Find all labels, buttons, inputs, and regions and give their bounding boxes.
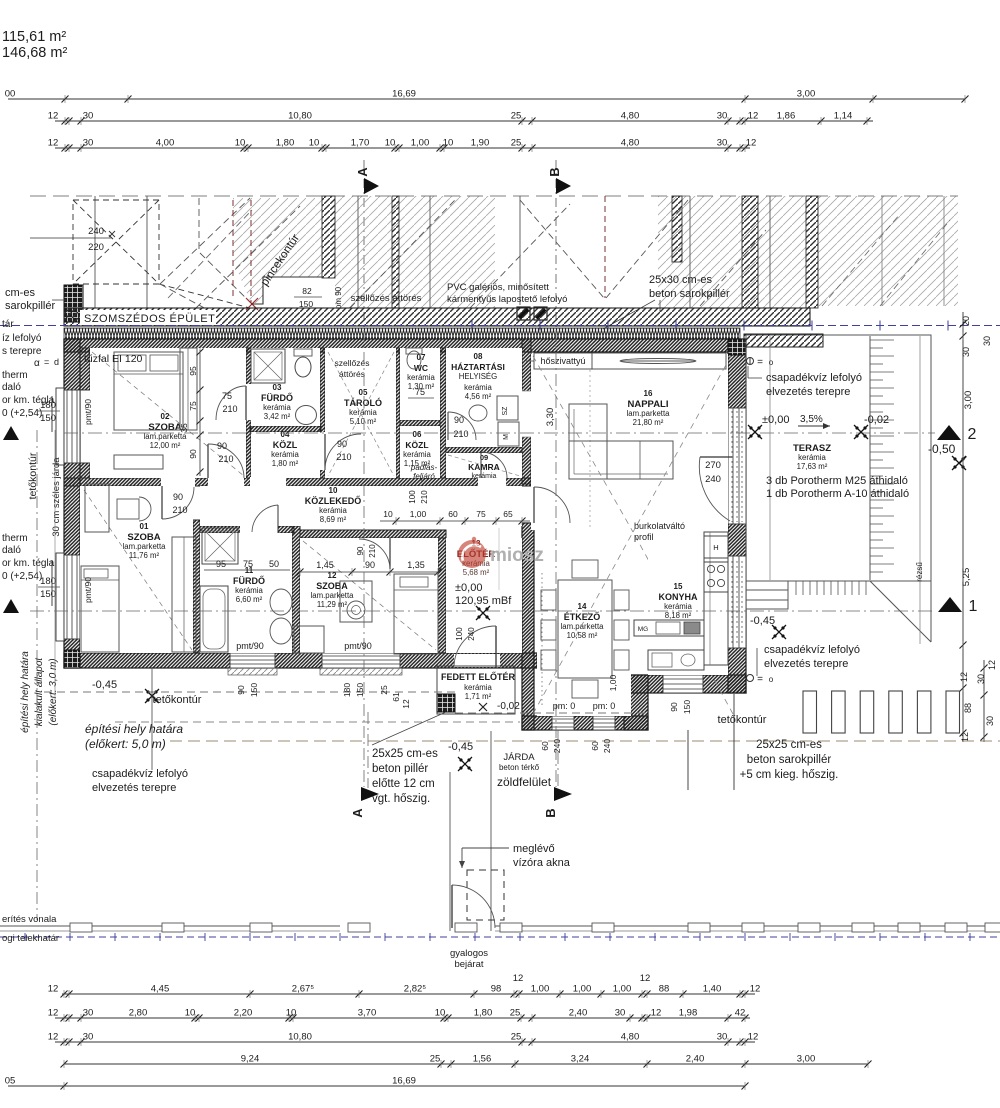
svg-text:30: 30 (615, 1008, 626, 1019)
svg-text:210: 210 (218, 454, 233, 464)
svg-text:KÖZL: KÖZL (405, 440, 428, 450)
svg-text:kerámia: kerámia (319, 506, 347, 515)
svg-text:11,76 m²: 11,76 m² (129, 551, 160, 560)
svg-text:150: 150 (355, 683, 365, 697)
svg-text:5,25: 5,25 (961, 568, 972, 587)
svg-text:pm: 0: pm: 0 (553, 701, 576, 711)
svg-text:12: 12 (959, 672, 969, 682)
svg-text:1,90: 1,90 (471, 138, 490, 149)
svg-text:08: 08 (474, 352, 483, 361)
svg-text:90: 90 (188, 449, 198, 459)
svg-text:=: = (757, 357, 763, 368)
svg-text:75: 75 (188, 401, 198, 411)
svg-text:42: 42 (735, 1008, 746, 1019)
svg-text:(előkert: 3,0 m): (előkert: 3,0 m) (48, 658, 59, 725)
svg-text:25: 25 (511, 1032, 522, 1043)
svg-text:240: 240 (88, 226, 104, 237)
svg-text:4,80: 4,80 (621, 138, 640, 149)
svg-text:ogi telekhatár: ogi telekhatár (2, 933, 59, 944)
svg-text:100: 100 (455, 627, 464, 641)
svg-text:íz lefolyó: íz lefolyó (2, 333, 42, 344)
svg-text:előtte 12 cm: előtte 12 cm (372, 778, 435, 790)
svg-text:0 (+2,54): 0 (+2,54) (2, 571, 42, 582)
svg-text:16,69: 16,69 (392, 1076, 416, 1087)
svg-text:12: 12 (401, 699, 411, 709)
svg-text:210: 210 (336, 452, 351, 462)
svg-text:1,14: 1,14 (834, 111, 853, 122)
svg-text:SZ: SZ (502, 406, 509, 416)
svg-text:=: = (757, 674, 763, 685)
svg-text:KÖZL: KÖZL (273, 440, 298, 450)
svg-text:PVC galériós, minősített: PVC galériós, minősített (447, 282, 549, 293)
svg-text:hőszivattyú: hőszivattyú (540, 356, 585, 366)
svg-text:kerámia: kerámia (464, 683, 492, 692)
svg-text:30 cm széles járda: 30 cm széles járda (51, 457, 62, 537)
svg-text:pmt/90: pmt/90 (344, 641, 372, 651)
svg-text:270: 270 (705, 460, 721, 471)
svg-text:35: 35 (179, 423, 189, 433)
svg-text:30: 30 (961, 347, 971, 357)
svg-text:-0,45: -0,45 (448, 741, 473, 753)
svg-text:2: 2 (968, 426, 977, 443)
svg-text:220: 220 (88, 242, 104, 253)
svg-text:05: 05 (359, 388, 368, 397)
svg-text:25x25 cm-es: 25x25 cm-es (756, 739, 822, 751)
svg-text:9,24: 9,24 (241, 1054, 260, 1065)
svg-text:150: 150 (40, 413, 56, 424)
svg-text:pmt/90: pmt/90 (236, 641, 264, 651)
svg-text:50: 50 (269, 559, 279, 569)
svg-text:60: 60 (590, 741, 600, 751)
svg-text:98: 98 (491, 984, 502, 995)
svg-text:30: 30 (717, 111, 728, 122)
svg-text:90: 90 (365, 560, 375, 570)
svg-text:daló: daló (2, 382, 21, 393)
svg-text:gyalogos: gyalogos (450, 948, 488, 959)
svg-text:30: 30 (83, 138, 94, 149)
svg-text:s terepre: s terepre (2, 346, 42, 357)
svg-text:90: 90 (669, 702, 679, 712)
svg-text:±0,00: ±0,00 (762, 414, 789, 426)
svg-text:sarokpillér: sarokpillér (5, 300, 55, 312)
svg-text:-0,45: -0,45 (750, 615, 775, 627)
svg-text:1,56: 1,56 (473, 1054, 492, 1065)
svg-text:kerámia: kerámia (403, 450, 431, 459)
svg-text:1,00: 1,00 (531, 984, 550, 995)
svg-text:MG: MG (638, 626, 648, 633)
svg-text:1,71 m²: 1,71 m² (465, 692, 492, 701)
svg-text:α: α (34, 358, 40, 369)
svg-text:beton térkő: beton térkő (499, 763, 540, 772)
svg-text:150: 150 (40, 589, 56, 600)
svg-text:o: o (769, 675, 774, 684)
svg-text:HÁZTARTÁSI: HÁZTARTÁSI (451, 362, 505, 372)
svg-text:12: 12 (748, 111, 759, 122)
svg-text:therm: therm (2, 533, 28, 544)
svg-text:kialakult állapot: kialakult állapot (34, 657, 45, 727)
svg-text:61: 61 (391, 692, 401, 702)
svg-text:3,30: 3,30 (545, 408, 556, 427)
svg-text:05: 05 (5, 1076, 16, 1087)
svg-text:cm-es: cm-es (5, 287, 35, 299)
svg-text:-0,45: -0,45 (92, 679, 117, 691)
svg-text:pm: 0: pm: 0 (593, 701, 616, 711)
svg-text:90: 90 (173, 492, 183, 502)
svg-text:180: 180 (342, 683, 352, 697)
svg-text:8,69 m²: 8,69 m² (320, 515, 347, 524)
svg-text:vgt. hőszig.: vgt. hőszig. (372, 793, 430, 805)
svg-text:10: 10 (309, 138, 320, 149)
svg-text:90: 90 (236, 685, 246, 695)
svg-text:JÁRDA: JÁRDA (503, 752, 535, 763)
svg-text:2,82⁵: 2,82⁵ (404, 984, 426, 995)
svg-text:10: 10 (435, 1008, 446, 1019)
svg-text:06: 06 (413, 430, 422, 439)
svg-text:95: 95 (188, 366, 198, 376)
svg-text:17,63 m²: 17,63 m² (797, 462, 828, 471)
svg-text:áttörés: áttörés (339, 369, 365, 379)
svg-text:TÁROLÓ: TÁROLÓ (344, 397, 382, 408)
svg-text:kerámia: kerámia (271, 450, 299, 459)
svg-text:20: 20 (961, 316, 971, 326)
svg-text:miosz: miosz (490, 545, 544, 566)
svg-text:-0,50: -0,50 (928, 442, 956, 456)
svg-text:75: 75 (415, 387, 425, 397)
svg-text:elvezetés terepre: elvezetés terepre (766, 386, 850, 398)
svg-text:90: 90 (454, 415, 464, 425)
svg-text:30: 30 (717, 138, 728, 149)
svg-text:lam.parketta: lam.parketta (123, 542, 167, 551)
svg-text:1,00: 1,00 (411, 138, 430, 149)
svg-text:1,86: 1,86 (777, 111, 796, 122)
svg-text:4,56 m²: 4,56 m² (465, 392, 492, 401)
svg-text:B: B (547, 167, 562, 176)
svg-text:profil: profil (634, 532, 654, 542)
svg-text:30: 30 (976, 674, 986, 684)
svg-text:építési hely határa: építési hely határa (85, 722, 183, 736)
svg-text:B: B (543, 808, 558, 817)
svg-text:WC: WC (414, 363, 428, 373)
svg-text:KÖZLEKEDŐ: KÖZLEKEDŐ (305, 495, 362, 506)
svg-text:kerámia: kerámia (235, 586, 263, 595)
svg-text:03: 03 (273, 383, 282, 392)
svg-text:240: 240 (552, 739, 562, 753)
svg-text:+5 cm kieg. hőszig.: +5 cm kieg. hőszig. (740, 769, 839, 781)
svg-text:2,40: 2,40 (569, 1008, 588, 1019)
svg-text:25: 25 (511, 111, 522, 122)
svg-text:FÜRDŐ: FÜRDŐ (261, 392, 293, 403)
svg-text:SZOMSZÉDOS ÉPÜLET: SZOMSZÉDOS ÉPÜLET (84, 312, 215, 325)
svg-text:10: 10 (443, 138, 454, 149)
svg-text:4,00: 4,00 (156, 138, 175, 149)
svg-text:3,5%: 3,5% (800, 414, 823, 425)
svg-text:12: 12 (513, 973, 524, 984)
svg-text:vízóra akna: vízóra akna (513, 857, 571, 869)
svg-text:erítés vonala: erítés vonala (2, 914, 57, 925)
svg-text:1,45: 1,45 (316, 560, 334, 570)
svg-text:210: 210 (172, 505, 187, 515)
svg-text:1,00: 1,00 (608, 674, 618, 691)
svg-text:1,98: 1,98 (679, 1008, 698, 1019)
svg-text:10: 10 (383, 509, 393, 519)
svg-text:01: 01 (140, 522, 149, 531)
svg-text:HELYISÉG: HELYISÉG (459, 372, 497, 381)
svg-text:12: 12 (746, 138, 757, 149)
svg-text:építési hely határa: építési hely határa (20, 651, 31, 733)
svg-text:10,80: 10,80 (288, 1032, 312, 1043)
svg-text:1,40: 1,40 (703, 984, 722, 995)
svg-text:02: 02 (161, 412, 170, 421)
svg-text:30: 30 (83, 111, 94, 122)
svg-text:75: 75 (222, 391, 232, 401)
svg-text:kerámia: kerámia (407, 373, 435, 382)
svg-text:25x25 cm-es: 25x25 cm-es (372, 748, 438, 760)
svg-text:10: 10 (286, 1008, 297, 1019)
svg-text:kerámia: kerámia (798, 453, 826, 462)
svg-text:3 db Porotherm M25 áthidaló: 3 db Porotherm M25 áthidaló (766, 475, 908, 487)
svg-text:11,29 m²: 11,29 m² (317, 600, 348, 609)
svg-text:75: 75 (243, 559, 253, 569)
svg-text:kerámia: kerámia (664, 602, 692, 611)
svg-text:3,24: 3,24 (571, 1054, 590, 1065)
svg-text:30: 30 (982, 336, 992, 346)
svg-text:12: 12 (987, 660, 997, 670)
svg-text:3,42 m²: 3,42 m² (264, 412, 291, 421)
svg-text:12: 12 (48, 138, 59, 149)
svg-text:12: 12 (48, 111, 59, 122)
svg-text:210: 210 (453, 429, 468, 439)
svg-text:30: 30 (985, 716, 995, 726)
svg-text:padlás-: padlás- (410, 463, 438, 472)
svg-text:10: 10 (185, 1008, 196, 1019)
svg-text:beton pillér: beton pillér (372, 763, 428, 775)
svg-text:04: 04 (281, 430, 290, 439)
svg-text:feljáró: feljáró (413, 472, 435, 481)
svg-text:or km. tégla: or km. tégla (2, 558, 55, 569)
svg-text:beton sarokpillér: beton sarokpillér (747, 754, 832, 766)
svg-text:-0,02: -0,02 (497, 701, 520, 712)
svg-text:tár: tár (2, 319, 14, 330)
svg-text:KONYHA: KONYHA (658, 592, 698, 602)
svg-text:M: M (503, 434, 510, 440)
svg-text:15: 15 (674, 582, 683, 591)
svg-text:szellőzés áttörés: szellőzés áttörés (351, 293, 422, 304)
svg-text:21,80 m²: 21,80 m² (633, 418, 664, 427)
svg-text:65: 65 (503, 509, 513, 519)
svg-text:12: 12 (640, 973, 651, 984)
svg-text:pm 90: pm 90 (334, 286, 343, 309)
svg-text:00: 00 (5, 89, 16, 100)
svg-text:90: 90 (337, 439, 347, 449)
svg-text:210: 210 (420, 490, 429, 504)
svg-text:12,00 m²: 12,00 m² (150, 441, 181, 450)
svg-text:180: 180 (40, 400, 56, 411)
svg-text:75: 75 (476, 509, 486, 519)
svg-text:kerámia: kerámia (263, 403, 291, 412)
svg-text:210: 210 (368, 544, 377, 558)
svg-text:SZOBA: SZOBA (316, 581, 348, 591)
svg-text:=: = (44, 357, 49, 367)
svg-text:1,80: 1,80 (276, 138, 295, 149)
svg-text:30: 30 (83, 1008, 94, 1019)
svg-text:2,67⁵: 2,67⁵ (292, 984, 314, 995)
svg-text:daló: daló (2, 545, 21, 556)
svg-text:1,00: 1,00 (613, 984, 632, 995)
svg-text:1,80 m²: 1,80 m² (272, 459, 299, 468)
svg-text:10: 10 (235, 138, 246, 149)
svg-text:d: d (54, 357, 59, 367)
svg-text:tetőkontúr: tetőkontúr (153, 694, 202, 706)
svg-text:H: H (713, 543, 718, 552)
svg-text:30: 30 (83, 1032, 94, 1043)
svg-text:lam.parketta: lam.parketta (311, 591, 355, 600)
svg-text:5,68 m²: 5,68 m² (463, 568, 490, 577)
svg-text:rézsű: rézsű (915, 562, 924, 582)
svg-text:10: 10 (385, 138, 396, 149)
svg-text:1 db Porotherm A-10 áthidaló: 1 db Porotherm A-10 áthidaló (766, 488, 909, 500)
svg-text:10: 10 (329, 486, 338, 495)
svg-text:bejárat: bejárat (454, 959, 483, 970)
svg-text:kerámia: kerámia (472, 473, 497, 480)
svg-text:146,68 m²: 146,68 m² (2, 45, 67, 61)
svg-text:A: A (355, 167, 370, 177)
svg-text:12: 12 (48, 984, 59, 995)
svg-text:meglévő: meglévő (513, 843, 555, 855)
svg-text:95: 95 (216, 559, 226, 569)
svg-text:burkolatváltó: burkolatváltó (634, 521, 685, 531)
svg-text:12: 12 (748, 1032, 759, 1043)
svg-text:3,00: 3,00 (797, 89, 816, 100)
svg-text:1,35: 1,35 (407, 560, 425, 570)
svg-text:60: 60 (540, 741, 550, 751)
svg-text:4,80: 4,80 (621, 1032, 640, 1043)
svg-text:5,10 m²: 5,10 m² (350, 417, 377, 426)
svg-text:tűzfal EI 120: tűzfal EI 120 (84, 353, 143, 365)
svg-text:1,00: 1,00 (410, 509, 427, 519)
svg-text:12: 12 (651, 1008, 662, 1019)
svg-text:210: 210 (222, 404, 237, 414)
svg-text:88: 88 (963, 703, 973, 713)
svg-text:240: 240 (602, 739, 612, 753)
svg-text:60: 60 (448, 509, 458, 519)
svg-text:0 (+2,54): 0 (+2,54) (2, 408, 42, 419)
svg-text:240: 240 (705, 474, 721, 485)
svg-text:2,20: 2,20 (234, 1008, 253, 1019)
svg-text:ÉTKEZŐ: ÉTKEZŐ (564, 611, 601, 622)
svg-text:FÜRDŐ: FÜRDŐ (233, 575, 265, 586)
svg-text:30: 30 (717, 1032, 728, 1043)
svg-text:(előkert: 5,0 m): (előkert: 5,0 m) (85, 737, 166, 751)
svg-text:90: 90 (217, 441, 227, 451)
svg-text:180: 180 (40, 576, 56, 587)
svg-text:2,80: 2,80 (129, 1008, 148, 1019)
svg-text:beton sarokpillér: beton sarokpillér (649, 288, 730, 300)
svg-text:1,80: 1,80 (474, 1008, 493, 1019)
svg-text:1,70: 1,70 (351, 138, 370, 149)
svg-text:16: 16 (644, 389, 653, 398)
svg-text:25: 25 (430, 1054, 441, 1065)
svg-text:82: 82 (302, 286, 312, 296)
svg-text:14: 14 (578, 602, 587, 611)
svg-text:240: 240 (467, 627, 476, 641)
svg-text:4,80: 4,80 (621, 111, 640, 122)
svg-text:150: 150 (682, 700, 692, 714)
svg-text:12: 12 (48, 1008, 59, 1019)
svg-text:FEDETT ELŐTÉR: FEDETT ELŐTÉR (441, 671, 516, 682)
svg-text:-0,02: -0,02 (864, 414, 889, 426)
svg-text:KAMRA: KAMRA (468, 462, 500, 472)
svg-text:8,18 m²: 8,18 m² (665, 611, 692, 620)
svg-text:16,69: 16,69 (392, 89, 416, 100)
svg-text:lam.parketta: lam.parketta (561, 622, 605, 631)
svg-text:therm: therm (2, 370, 28, 381)
svg-text:100: 100 (408, 490, 417, 504)
svg-text:150: 150 (249, 683, 259, 697)
svg-text:12: 12 (750, 984, 761, 995)
svg-text:1: 1 (969, 598, 978, 615)
svg-text:csapadékvíz lefolyó: csapadékvíz lefolyó (764, 644, 860, 656)
svg-text:25: 25 (379, 685, 389, 695)
svg-text:1,00: 1,00 (573, 984, 592, 995)
svg-text:csapadékvíz lefolyó: csapadékvíz lefolyó (92, 768, 188, 780)
svg-text:3,70: 3,70 (358, 1008, 377, 1019)
svg-text:3,00: 3,00 (797, 1054, 816, 1065)
svg-text:o: o (769, 358, 774, 367)
svg-text:kármentyűs lapostető lefolyó: kármentyűs lapostető lefolyó (447, 294, 567, 305)
svg-text:lam.parketta: lam.parketta (627, 409, 671, 418)
svg-text:A: A (350, 808, 365, 818)
svg-text:12: 12 (48, 1032, 59, 1043)
svg-text:115,61 m²: 115,61 m² (2, 29, 66, 45)
svg-text:10,80: 10,80 (288, 111, 312, 122)
svg-text:120,95 mBf: 120,95 mBf (455, 595, 512, 607)
svg-text:elvezetés terepre: elvezetés terepre (92, 782, 176, 794)
svg-text:4,45: 4,45 (151, 984, 170, 995)
svg-text:kerámia: kerámia (464, 383, 492, 392)
svg-text:6,60 m²: 6,60 m² (236, 595, 263, 604)
svg-text:25: 25 (511, 138, 522, 149)
svg-text:pmt/90: pmt/90 (83, 577, 93, 603)
svg-text:3,00: 3,00 (963, 391, 974, 410)
svg-text:2,40: 2,40 (686, 1054, 705, 1065)
svg-text:csapadékvíz lefolyó: csapadékvíz lefolyó (766, 372, 862, 384)
svg-text:±0,00: ±0,00 (455, 582, 482, 594)
svg-text:25: 25 (510, 1008, 521, 1019)
svg-text:25x30 cm-es: 25x30 cm-es (649, 274, 712, 286)
svg-text:zöldfelület: zöldfelület (497, 775, 552, 789)
svg-text:tetőkontúr: tetőkontúr (718, 714, 767, 726)
svg-text:10,58 m²: 10,58 m² (567, 631, 598, 640)
svg-text:pmt/90: pmt/90 (83, 399, 93, 425)
svg-text:elvezetés terepre: elvezetés terepre (764, 658, 848, 670)
svg-text:88: 88 (659, 984, 670, 995)
